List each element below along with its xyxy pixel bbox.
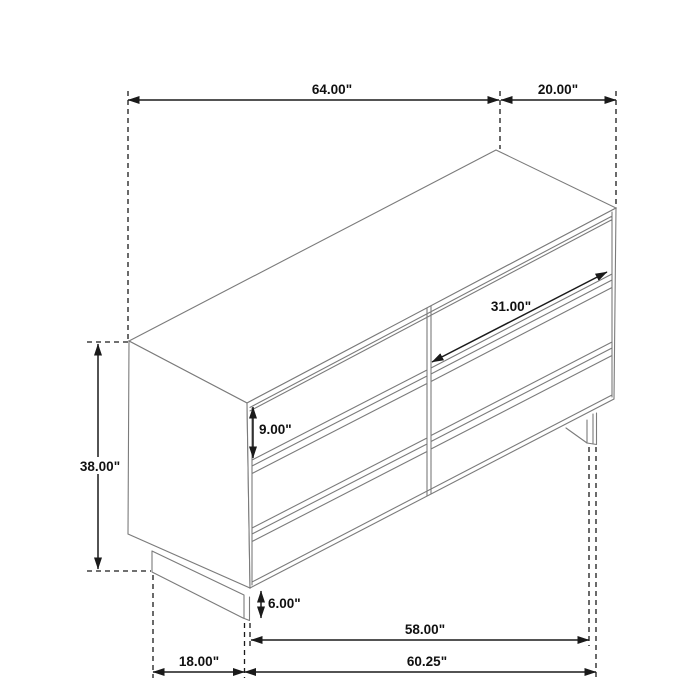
dimension-label-6: 6.00"	[268, 596, 301, 611]
dimension-label-9: 9.00"	[259, 422, 292, 437]
dimension-label-20: 20.00"	[538, 82, 578, 97]
dimension-label-64: 64.00"	[312, 82, 352, 97]
dimension-label-60: 60.25"	[407, 654, 447, 669]
dresser-dimension-diagram: 64.00" 20.00" 38.00" 9.00" 31.00" 6.00"	[0, 0, 700, 700]
dimension-label-38: 38.00"	[80, 459, 120, 474]
dimension-label-31: 31.00"	[491, 299, 531, 314]
dimension-diagram-page: Inner Size of Drawer : 29.00"W X 12.75"D…	[0, 0, 700, 700]
dimension-label-58: 58.00"	[405, 622, 445, 637]
dimension-label-18: 18.00"	[179, 654, 219, 669]
